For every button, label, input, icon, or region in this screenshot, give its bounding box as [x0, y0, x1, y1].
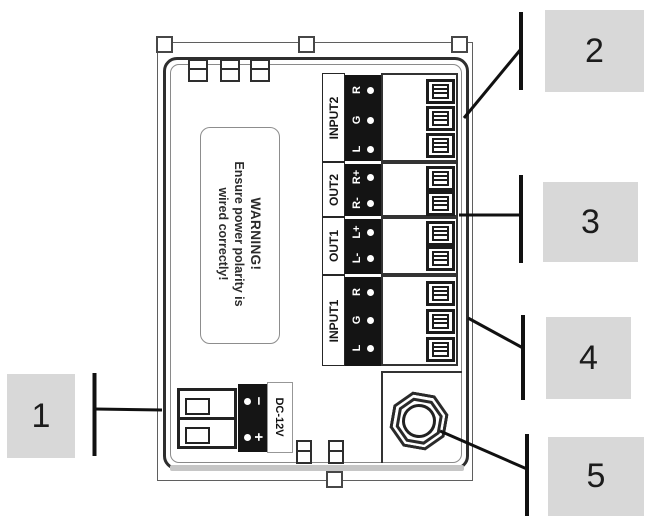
callout-1-number: 1 — [32, 397, 51, 436]
frame-clip-top-left — [156, 36, 173, 53]
pin-label-input1-r: R — [349, 279, 365, 305]
frame-clip-bottom — [326, 471, 343, 488]
callout-5-box: 5 — [548, 437, 644, 516]
frame-clip-top-center — [298, 36, 315, 53]
pin-label-input1-g: G — [349, 307, 365, 333]
pin-dot — [367, 255, 374, 262]
callout-5-number: 5 — [587, 457, 606, 496]
callout-2-number: 2 — [585, 32, 604, 71]
pin-dot — [367, 146, 374, 153]
screw-terminal — [426, 221, 455, 246]
callout-4-number: 4 — [579, 339, 598, 378]
power-terminal-hole-2 — [185, 427, 210, 444]
callout-3-box: 3 — [543, 182, 638, 262]
pin-label-out2-rplus: R+ — [349, 164, 365, 190]
screw-terminal — [426, 106, 455, 131]
pin-dot — [367, 317, 374, 324]
mounting-tab-4 — [296, 440, 312, 464]
dc-voltage-label: DC-12V — [270, 385, 288, 449]
warning-text: WARNING! Ensure power polarity is wired … — [202, 128, 276, 340]
power-terminal-divider — [179, 417, 235, 420]
pin-label-out1-lplus: L+ — [349, 219, 365, 245]
pin-dot — [367, 229, 374, 236]
nut-circle — [399, 401, 438, 440]
compartment-line-horizontal — [381, 371, 462, 373]
strip-divider-3 — [345, 274, 381, 277]
pin-label-out2-rminus: R- — [349, 190, 365, 216]
warning-line-2: wired correctly! — [215, 187, 231, 280]
frame-clip-top-right — [451, 36, 468, 53]
power-dot-negative — [244, 398, 251, 405]
pin-label-input2-l: L — [349, 136, 365, 162]
pin-label-input2-g: G — [349, 107, 365, 133]
screw-terminal — [426, 79, 455, 104]
screw-terminal — [426, 246, 455, 271]
screw-terminal — [426, 281, 455, 306]
pin-label-input2-r: R — [349, 77, 365, 103]
power-terminal-block — [177, 388, 237, 449]
body-shadow — [170, 465, 464, 471]
mounting-tab-3 — [250, 59, 270, 82]
callout-1-leader-line — [95, 409, 163, 410]
callout-3-number: 3 — [581, 203, 600, 242]
pin-dot — [367, 87, 374, 94]
screw-terminal — [426, 191, 455, 216]
pin-dot — [367, 200, 374, 207]
callout-4-leader-line — [468, 318, 523, 348]
screw-terminal — [426, 133, 455, 158]
power-terminal-hole-1 — [185, 398, 210, 415]
pin-label-out1-lminus: L- — [349, 245, 365, 271]
compartment-line-vertical — [381, 371, 383, 463]
pin-dot — [367, 174, 374, 181]
mounting-tab-2 — [220, 59, 240, 82]
screw-terminal — [426, 309, 455, 334]
pin-dot — [367, 289, 374, 296]
power-dot-positive — [244, 434, 251, 441]
warning-title: WARNING! — [248, 198, 263, 271]
mounting-tab-5 — [328, 440, 344, 464]
warning-line-1: Ensure power polarity is — [231, 161, 247, 306]
callout-1-box: 1 — [7, 374, 75, 458]
callout-4-box: 4 — [546, 317, 631, 399]
negative-sign: − — [251, 393, 267, 409]
pin-dot — [367, 117, 374, 124]
wiring-diagram: WARNING! Ensure power polarity is wired … — [0, 0, 648, 521]
callout-2-box: 2 — [545, 10, 644, 92]
group-label-out1: OUT1 — [324, 203, 344, 289]
group-label-input1: INPUT1 — [324, 278, 344, 364]
mounting-tab-1 — [188, 59, 208, 82]
positive-sign: + — [251, 429, 267, 445]
screw-terminal — [426, 166, 455, 191]
pin-dot — [367, 345, 374, 352]
screw-terminal — [426, 337, 455, 362]
pin-label-input1-l: L — [349, 335, 365, 361]
